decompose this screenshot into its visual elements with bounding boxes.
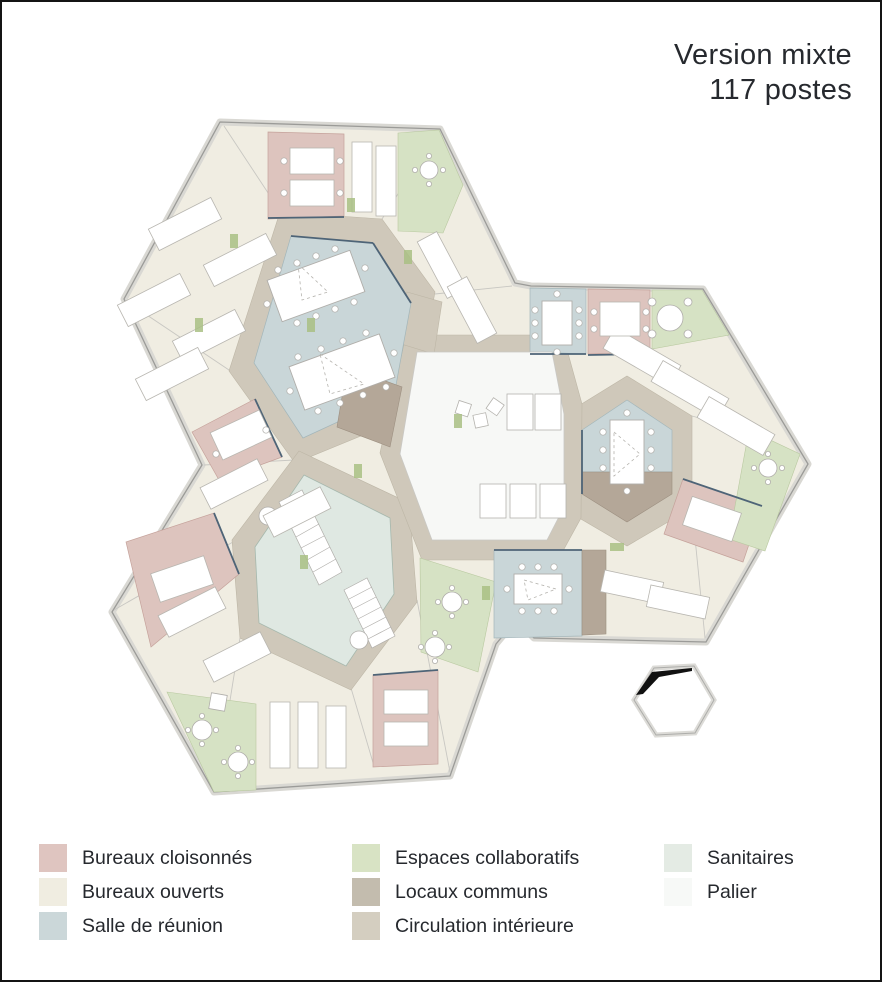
common-room xyxy=(582,550,606,635)
legend-swatch xyxy=(352,912,380,940)
legend-swatch xyxy=(352,844,380,872)
legend-swatch xyxy=(664,844,692,872)
legend-item-circulation-interieure: Circulation intérieure xyxy=(352,912,579,940)
key-plan-hexagon-icon xyxy=(634,666,714,735)
legend-label: Palier xyxy=(707,881,757,904)
legend-item-salle-de-reunion: Salle de réunion xyxy=(39,912,252,940)
legend-item-bureaux-cloisonnes: Bureaux cloisonnés xyxy=(39,844,252,872)
legend-column-2: Espaces collaboratifs Locaux communs Cir… xyxy=(352,844,579,946)
legend-column-3: Sanitaires Palier xyxy=(664,844,794,912)
legend-label: Sanitaires xyxy=(707,847,794,870)
elevator-shaft xyxy=(350,631,368,649)
closed-office-room xyxy=(373,670,438,767)
floor-plan xyxy=(2,2,882,982)
legend-item-espaces-collaboratifs: Espaces collaboratifs xyxy=(352,844,579,872)
legend-item-bureaux-ouverts: Bureaux ouverts xyxy=(39,878,252,906)
legend-label: Salle de réunion xyxy=(82,915,223,938)
legend-item-sanitaires: Sanitaires xyxy=(664,844,794,872)
drawing-sheet: Version mixte 117 postes xyxy=(0,0,882,982)
legend-item-palier: Palier xyxy=(664,878,794,906)
legend-swatch xyxy=(39,912,67,940)
legend-label: Locaux communs xyxy=(395,881,548,904)
legend-swatch xyxy=(352,878,380,906)
legend-swatch xyxy=(39,878,67,906)
legend-swatch xyxy=(664,878,692,906)
legend-label: Bureaux ouverts xyxy=(82,881,224,904)
legend-label: Espaces collaboratifs xyxy=(395,847,579,870)
palier xyxy=(400,352,566,540)
legend-item-locaux-communs: Locaux communs xyxy=(352,878,579,906)
legend-label: Bureaux cloisonnés xyxy=(82,847,252,870)
legend-swatch xyxy=(39,844,67,872)
legend-label: Circulation intérieure xyxy=(395,915,574,938)
legend-column-1: Bureaux cloisonnés Bureaux ouverts Salle… xyxy=(39,844,252,946)
